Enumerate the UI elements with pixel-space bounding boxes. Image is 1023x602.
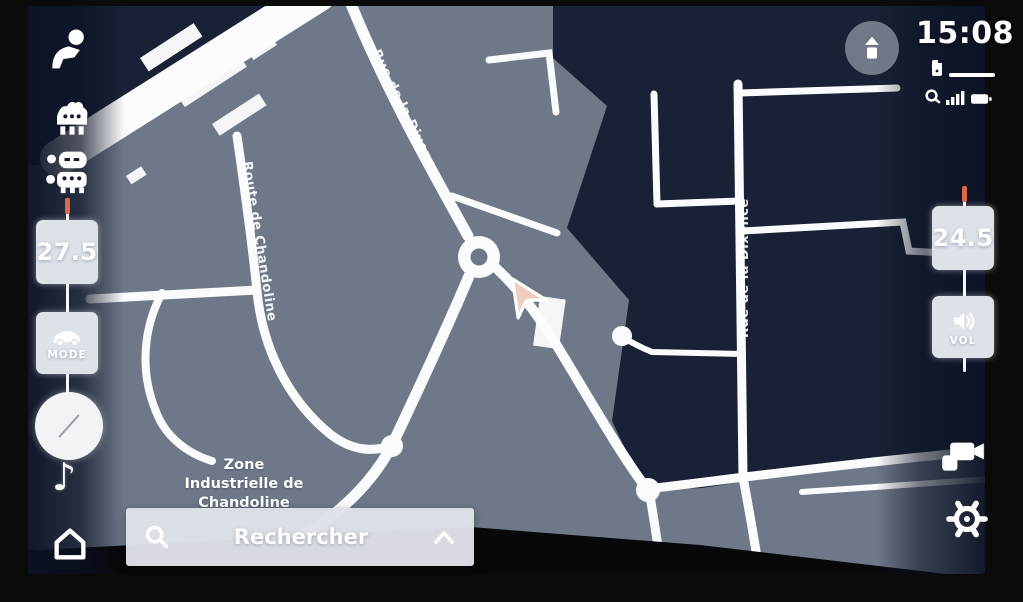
roundabout-center	[471, 249, 488, 266]
clock: 15:08	[916, 16, 1016, 51]
passenger-temp-button[interactable]: 24.5	[932, 206, 994, 270]
driver-temp-button[interactable]: 27.5	[36, 220, 98, 284]
music-shortcut[interactable]: ♪	[52, 458, 76, 496]
north-arrow-icon	[857, 33, 887, 63]
vehicle-button[interactable]	[50, 96, 94, 140]
signal-bars-icon	[946, 89, 966, 105]
search-icon	[144, 524, 170, 550]
status-underline	[949, 73, 995, 77]
battery-icon	[971, 93, 992, 105]
district-right	[553, 6, 985, 490]
camera-button[interactable]	[938, 436, 988, 478]
dial-needle	[58, 414, 80, 438]
infotainment-display: { "status": { "time": "15:08" }, "climat…	[0, 0, 1023, 602]
driver-profile-icon	[45, 28, 89, 72]
road-label-right: Rue de la Dixence	[737, 198, 752, 338]
right-slider-accent	[962, 186, 967, 202]
gear-icon	[946, 498, 988, 540]
status-row-1	[930, 58, 995, 78]
zone-label-line1: Zone	[158, 456, 330, 475]
speaker-icon	[949, 308, 977, 334]
vehicle-front-icon	[52, 98, 92, 138]
music-note-icon: ♪	[52, 455, 76, 499]
driver-profile-button[interactable]	[44, 26, 90, 74]
connection-icon	[924, 88, 941, 105]
search-placeholder: Rechercher	[170, 525, 432, 549]
home-icon	[50, 524, 90, 564]
camera-icon	[939, 437, 987, 477]
map-orientation-button[interactable]	[845, 21, 899, 75]
driver-temp-slider-accent	[65, 198, 70, 214]
clock-dial-widget[interactable]	[35, 392, 103, 460]
zone-label: Zone Industrielle de Chandoline	[158, 456, 330, 513]
home-button[interactable]	[48, 522, 92, 566]
volume-button[interactable]: VOL	[932, 296, 994, 358]
volume-label: VOL	[950, 335, 977, 347]
comfort-button[interactable]	[44, 146, 96, 196]
seats-icon	[46, 148, 94, 194]
zone-label-line2: Industrielle de	[158, 475, 330, 494]
junction-dot	[612, 326, 632, 346]
car-mode-icon	[48, 326, 86, 348]
chevron-up-button[interactable]	[432, 529, 456, 545]
junction-dot	[636, 478, 660, 502]
settings-button[interactable]	[944, 496, 990, 542]
device-status-icon	[930, 58, 944, 78]
status-row-2	[924, 88, 992, 105]
search-bar[interactable]: Rechercher	[126, 508, 474, 566]
junction-dot	[381, 435, 403, 457]
passenger-temp-value: 24.5	[932, 224, 993, 252]
driver-temp-value: 27.5	[36, 238, 97, 266]
mode-button[interactable]: MODE	[36, 312, 98, 374]
mode-label: MODE	[47, 349, 86, 361]
